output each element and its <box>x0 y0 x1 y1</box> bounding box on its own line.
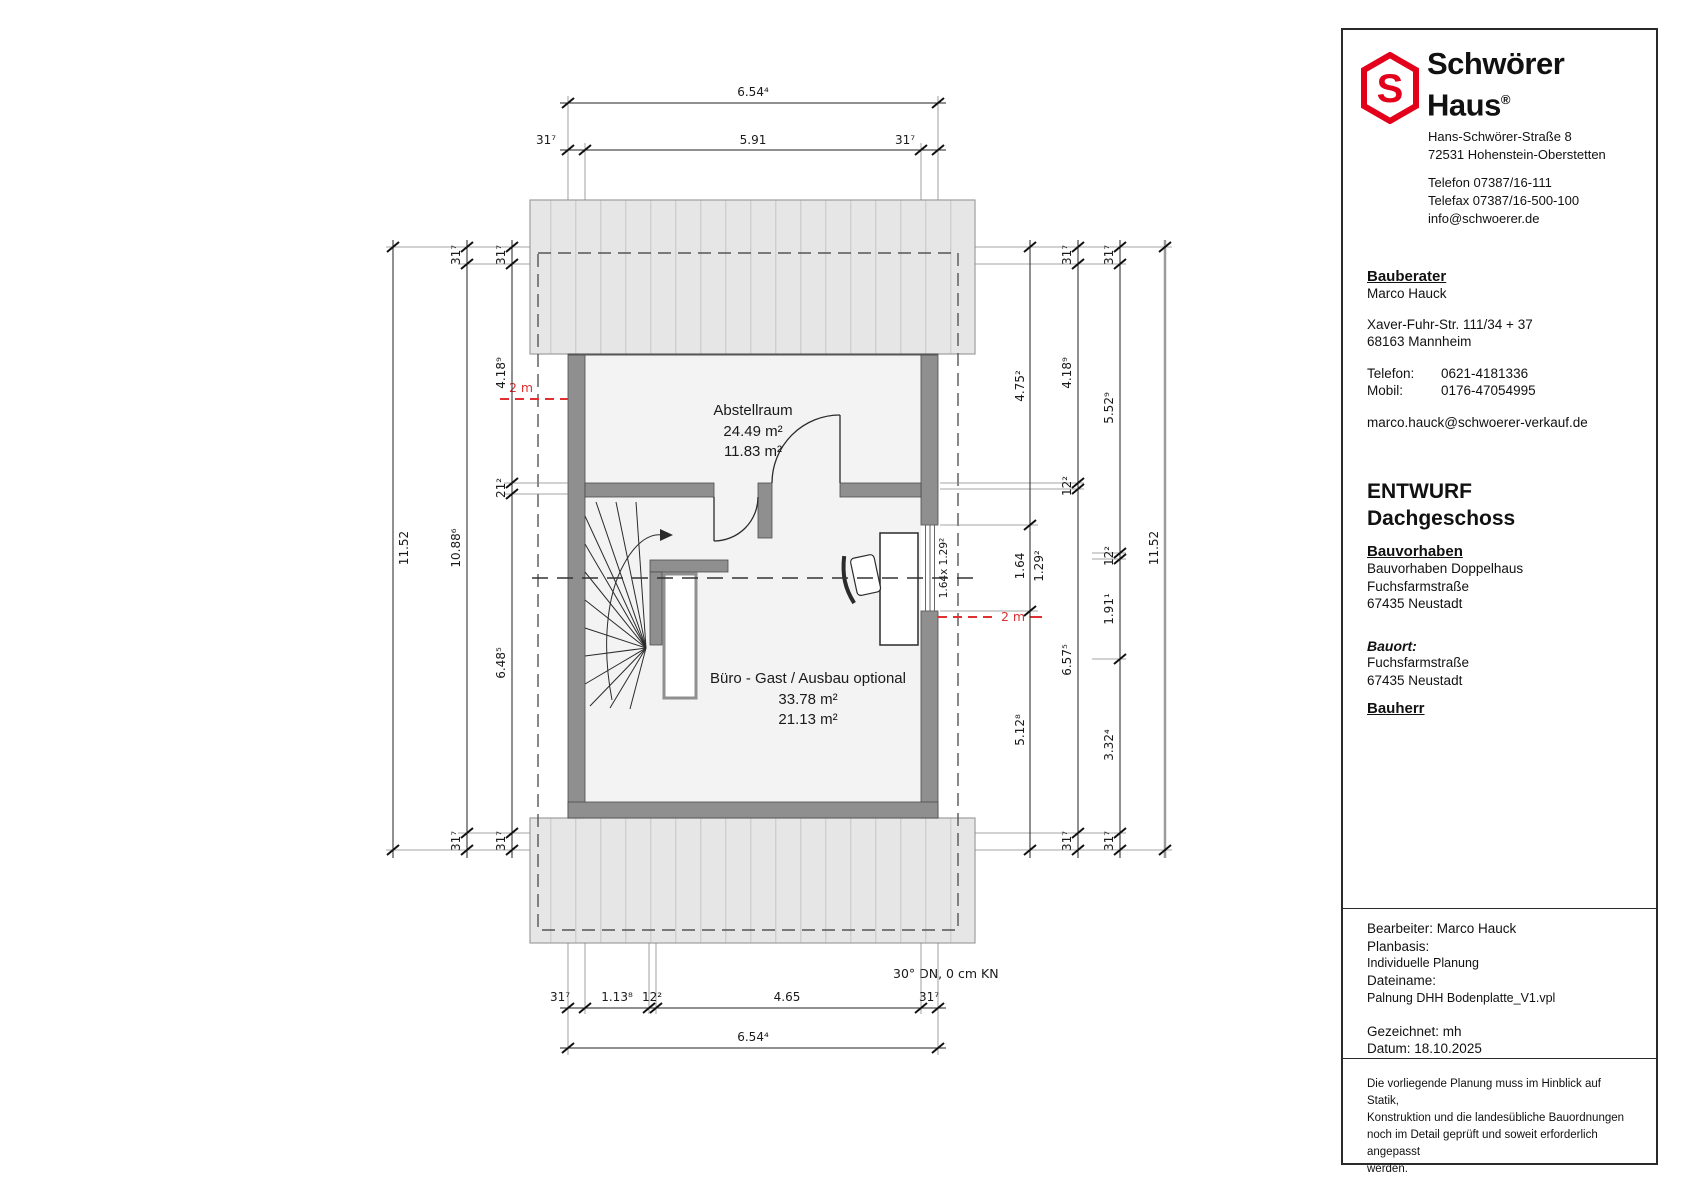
roof-surface-top <box>530 200 975 354</box>
svg-text:Büro - Gast / Ausbau optional: Büro - Gast / Ausbau optional <box>710 670 906 687</box>
company-name-line1: Schwörer <box>1427 46 1564 82</box>
svg-text:33.78 m²: 33.78 m² <box>778 691 837 708</box>
client-heading: Bauherr <box>1367 700 1425 717</box>
meta-planbasis-label: Planbasis: <box>1367 938 1555 956</box>
disclaimer: Die vorliegende Planung muss im Hinblick… <box>1367 1076 1635 1178</box>
project-line2: Fuchsfarmstraße <box>1367 578 1523 596</box>
svg-text:6.48⁵: 6.48⁵ <box>494 647 508 679</box>
svg-text:21²: 21² <box>494 478 508 498</box>
divider-meta <box>1343 908 1656 909</box>
meta-editor: Bearbeiter: Marco Hauck <box>1367 920 1555 938</box>
consultant-mobile-row: Mobil: 0176-47054995 <box>1367 382 1637 400</box>
consultant-phone: 0621-4181336 <box>1441 365 1528 383</box>
room-label-abstellraum: Abstellraum 24.49 m² 11.83 m² <box>713 402 792 460</box>
drawing-floor: Dachgeschoss <box>1367 505 1515 532</box>
consultant-mobile: 0176-47054995 <box>1441 382 1536 400</box>
site-line1: Fuchsfarmstraße <box>1367 654 1469 672</box>
svg-text:11.52: 11.52 <box>1147 531 1161 565</box>
svg-text:11.83 m²: 11.83 m² <box>724 443 782 460</box>
meta-drawn-by: Gezeichnet: mh <box>1367 1023 1555 1041</box>
svg-text:6.54⁴: 6.54⁴ <box>737 1030 769 1044</box>
consultant-phone-row: Telefon: 0621-4181336 <box>1367 365 1637 383</box>
svg-text:1.29²: 1.29² <box>1032 550 1046 582</box>
headroom-line-left: 2 m <box>500 380 568 399</box>
svg-text:4.18⁹: 4.18⁹ <box>494 357 508 389</box>
meta-date: Datum: 18.10.2025 <box>1367 1040 1555 1058</box>
svg-text:21.13 m²: 21.13 m² <box>778 711 837 728</box>
schwoerer-logo-icon: S <box>1361 52 1419 124</box>
svg-text:31⁷: 31⁷ <box>449 831 463 851</box>
drawing-status: ENTWURF <box>1367 478 1515 505</box>
svg-text:10.88⁶: 10.88⁶ <box>449 528 463 567</box>
shaft <box>664 574 696 698</box>
site-line2: 67435 Neustadt <box>1367 672 1469 690</box>
svg-text:11.52: 11.52 <box>397 531 411 565</box>
svg-text:5.91: 5.91 <box>740 133 767 147</box>
window <box>921 525 938 611</box>
company-fax: Telefax 07387/16-500-100 <box>1428 192 1606 210</box>
svg-text:12²: 12² <box>642 990 662 1004</box>
svg-text:4.75²: 4.75² <box>1013 370 1027 402</box>
svg-text:31⁷: 31⁷ <box>1102 245 1116 265</box>
company-address-street: Hans-Schwörer-Straße 8 <box>1428 128 1606 146</box>
meta-planbasis: Individuelle Planung <box>1367 955 1555 972</box>
svg-text:6.54⁴: 6.54⁴ <box>737 85 769 99</box>
svg-text:31⁷: 31⁷ <box>1102 831 1116 851</box>
project-line3: 67435 Neustadt <box>1367 595 1523 613</box>
consultant-city: 68163 Mannheim <box>1367 333 1637 351</box>
window-size-label: 1.64x 1.29² <box>938 538 950 599</box>
svg-text:24.49 m²: 24.49 m² <box>723 423 782 440</box>
svg-text:1.64: 1.64 <box>1013 553 1027 580</box>
registered-mark: ® <box>1501 92 1510 107</box>
svg-text:31⁷: 31⁷ <box>919 990 939 1004</box>
svg-text:1.13⁸: 1.13⁸ <box>601 990 633 1004</box>
project-heading: Bauvorhaben <box>1367 543 1523 560</box>
svg-text:2 m: 2 m <box>509 380 533 395</box>
desk <box>880 533 918 645</box>
consultant-email[interactable]: marco.hauck@schwoerer-verkauf.de <box>1367 414 1637 432</box>
svg-text:5.52⁹: 5.52⁹ <box>1102 392 1116 424</box>
svg-text:31⁷: 31⁷ <box>494 831 508 851</box>
svg-text:4.18⁹: 4.18⁹ <box>1060 357 1074 389</box>
svg-text:31⁷: 31⁷ <box>1060 831 1074 851</box>
roof-surface-bottom <box>530 818 975 943</box>
project-line1: Bauvorhaben Doppelhaus <box>1367 560 1523 578</box>
company-email[interactable]: info@schwoerer.de <box>1428 210 1606 228</box>
svg-text:4.65: 4.65 <box>774 990 801 1004</box>
svg-text:12²: 12² <box>1102 546 1116 566</box>
svg-text:Abstellraum: Abstellraum <box>713 402 792 419</box>
consultant-name: Marco Hauck <box>1367 285 1637 303</box>
svg-text:31⁷: 31⁷ <box>494 245 508 265</box>
company-name-line2: Haus® <box>1427 82 1564 123</box>
roof-pitch-note: 30° DN, 0 cm KN <box>893 966 999 981</box>
floor-plan-sheet: 1.64x 1.29² 2 m 2 m Abstellraum 24.49 m²… <box>0 0 1684 1191</box>
svg-text:31⁷: 31⁷ <box>449 245 463 265</box>
svg-text:5.12⁸: 5.12⁸ <box>1013 714 1027 746</box>
svg-text:S: S <box>1377 67 1404 111</box>
svg-text:31⁷: 31⁷ <box>895 133 915 147</box>
svg-text:6.57⁵: 6.57⁵ <box>1060 644 1074 676</box>
company-address-city: 72531 Hohenstein-Oberstetten <box>1428 146 1606 164</box>
meta-filename: Palnung DHH Bodenplatte_V1.vpl <box>1367 990 1555 1007</box>
svg-text:31⁷: 31⁷ <box>550 990 570 1004</box>
svg-text:12²: 12² <box>1060 476 1074 496</box>
svg-text:3.32⁴: 3.32⁴ <box>1102 729 1116 761</box>
divider-disclaimer <box>1343 1058 1656 1059</box>
svg-text:31⁷: 31⁷ <box>536 133 556 147</box>
consultant-street: Xaver-Fuhr-Str. 111/34 + 37 <box>1367 316 1637 334</box>
title-block: S Schwörer Haus® Hans-Schwörer-Straße 8 … <box>1341 28 1658 1165</box>
svg-text:31⁷: 31⁷ <box>1060 245 1074 265</box>
svg-text:1.91¹: 1.91¹ <box>1102 593 1116 625</box>
company-phone: Telefon 07387/16-111 <box>1428 174 1606 192</box>
consultant-heading: Bauberater <box>1367 268 1637 285</box>
meta-filename-label: Dateiname: <box>1367 972 1555 990</box>
site-heading: Bauort: <box>1367 638 1469 654</box>
